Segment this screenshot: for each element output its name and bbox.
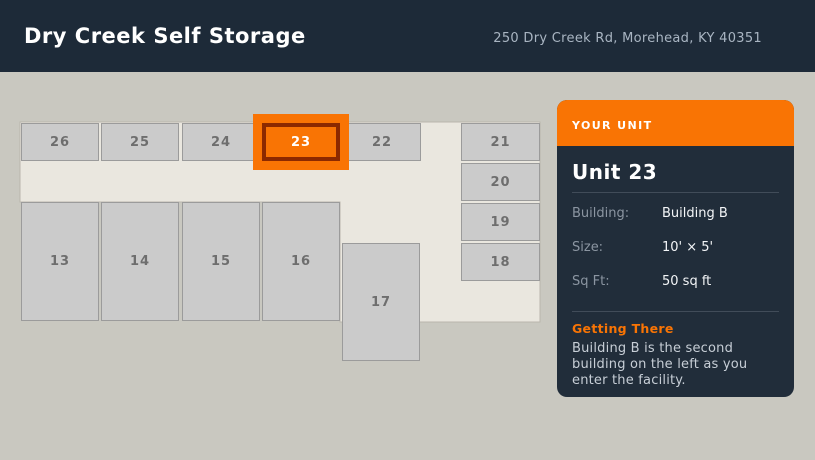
- detail-row-sqft: Sq Ft: 50 sq ft: [572, 274, 779, 290]
- unit-25-label: 25: [130, 135, 150, 150]
- unit-17[interactable]: 17: [342, 243, 420, 361]
- unit-23-label: 23: [291, 135, 311, 150]
- unit-title: Unit 23: [572, 160, 779, 184]
- unit-26-label: 26: [50, 135, 70, 150]
- unit-20[interactable]: 20: [461, 163, 540, 201]
- sqft-label: Sq Ft:: [572, 274, 662, 290]
- unit-26[interactable]: 26: [21, 123, 99, 161]
- facility-map: 26 25 24 23 22 21 20 19 18 13 14 15 16 1…: [0, 72, 560, 460]
- directions-text: Building B is the second building on the…: [572, 341, 779, 389]
- unit-21[interactable]: 21: [461, 123, 540, 161]
- your-unit-panel: YOUR UNIT Unit 23 Building: Building B S…: [557, 100, 794, 397]
- detail-row-size: Size: 10' × 5': [572, 240, 779, 256]
- unit-13[interactable]: 13: [21, 202, 99, 321]
- unit-22[interactable]: 22: [343, 123, 421, 161]
- unit-19[interactable]: 19: [461, 203, 540, 241]
- panel-header-label: YOUR UNIT: [572, 119, 653, 132]
- building-label: Building:: [572, 206, 662, 222]
- directions-line-1: Building B is the second: [572, 341, 779, 357]
- directions-line-2: building on the left as you: [572, 357, 779, 373]
- app-header: Dry Creek Self Storage 250 Dry Creek Rd,…: [0, 0, 815, 72]
- building-value: Building B: [662, 206, 779, 222]
- unit-16[interactable]: 16: [262, 202, 340, 321]
- unit-14[interactable]: 14: [101, 202, 179, 321]
- unit-19-label: 19: [490, 215, 510, 230]
- unit-21-label: 21: [490, 135, 510, 150]
- panel-header: YOUR UNIT: [557, 100, 794, 146]
- sqft-value: 50 sq ft: [662, 274, 779, 290]
- unit-15[interactable]: 15: [182, 202, 260, 321]
- detail-row-building: Building: Building B: [572, 206, 779, 222]
- directions-divider: [572, 311, 779, 312]
- unit-13-label: 13: [50, 254, 70, 269]
- directions-title: Getting There: [572, 321, 779, 336]
- unit-16-label: 16: [291, 254, 311, 269]
- unit-15-label: 15: [211, 254, 231, 269]
- unit-14-label: 14: [130, 254, 150, 269]
- unit-25[interactable]: 25: [101, 123, 179, 161]
- unit-24-label: 24: [211, 135, 231, 150]
- unit-18-label: 18: [490, 255, 510, 270]
- unit-20-label: 20: [490, 175, 510, 190]
- unit-22-label: 22: [372, 135, 392, 150]
- title-divider: [572, 192, 779, 193]
- unit-24[interactable]: 24: [182, 123, 260, 161]
- facility-address: 250 Dry Creek Rd, Morehead, KY 40351: [493, 31, 762, 46]
- unit-details: Building: Building B Size: 10' × 5' Sq F…: [572, 206, 779, 290]
- panel-body: Unit 23 Building: Building B Size: 10' ×…: [557, 146, 794, 389]
- unit-23-highlighted[interactable]: 23: [262, 123, 340, 161]
- unit-17-label: 17: [371, 295, 391, 310]
- size-label: Size:: [572, 240, 662, 256]
- directions-line-3: enter the facility.: [572, 373, 779, 389]
- size-value: 10' × 5': [662, 240, 779, 256]
- unit-18[interactable]: 18: [461, 243, 540, 281]
- page-title: Dry Creek Self Storage: [24, 24, 306, 48]
